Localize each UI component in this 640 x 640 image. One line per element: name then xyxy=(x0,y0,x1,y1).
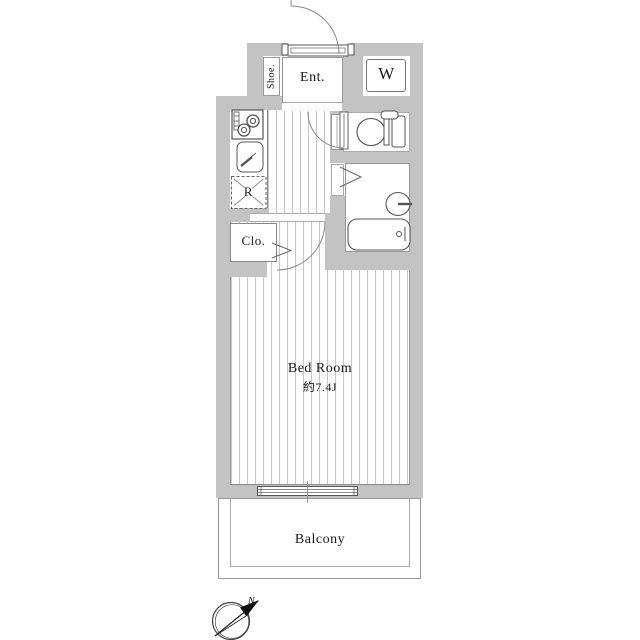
wall-bath-west xyxy=(330,196,345,213)
wall-below-bath xyxy=(332,252,410,270)
toilet-door xyxy=(331,114,343,150)
toilet-room xyxy=(343,112,410,152)
wall-ent-w-pillar xyxy=(343,56,363,96)
bathroom xyxy=(345,163,410,252)
entrance-step xyxy=(283,102,342,111)
compass-north-label: N xyxy=(247,596,256,607)
wall-below-toilet xyxy=(330,152,410,163)
balcony-window xyxy=(257,486,358,496)
compass: N xyxy=(213,596,260,640)
wall-right xyxy=(410,43,423,498)
entrance-door xyxy=(282,0,354,56)
floorplan: Shoe. Ent. W R Clo. Bed Room 約7.4J Balco… xyxy=(0,0,640,640)
bedroom-doorway xyxy=(250,213,325,222)
wall-upper-left xyxy=(247,43,263,96)
entrance-label: Ent. xyxy=(282,70,343,86)
bedroom-label: Bed Room 約7.4J xyxy=(250,361,390,395)
bathroom-door-gap xyxy=(331,164,344,196)
fridge-label: R xyxy=(231,184,266,200)
washer-label: W xyxy=(363,64,410,84)
corridor-floor xyxy=(268,110,330,213)
closet-label: Clo. xyxy=(230,233,277,249)
shoe-label: Shoe. xyxy=(263,57,280,96)
wall-under-closet xyxy=(216,262,267,277)
wall-doorway-left xyxy=(216,213,250,222)
wall-left xyxy=(216,96,230,498)
balcony-label: Balcony xyxy=(250,532,390,548)
